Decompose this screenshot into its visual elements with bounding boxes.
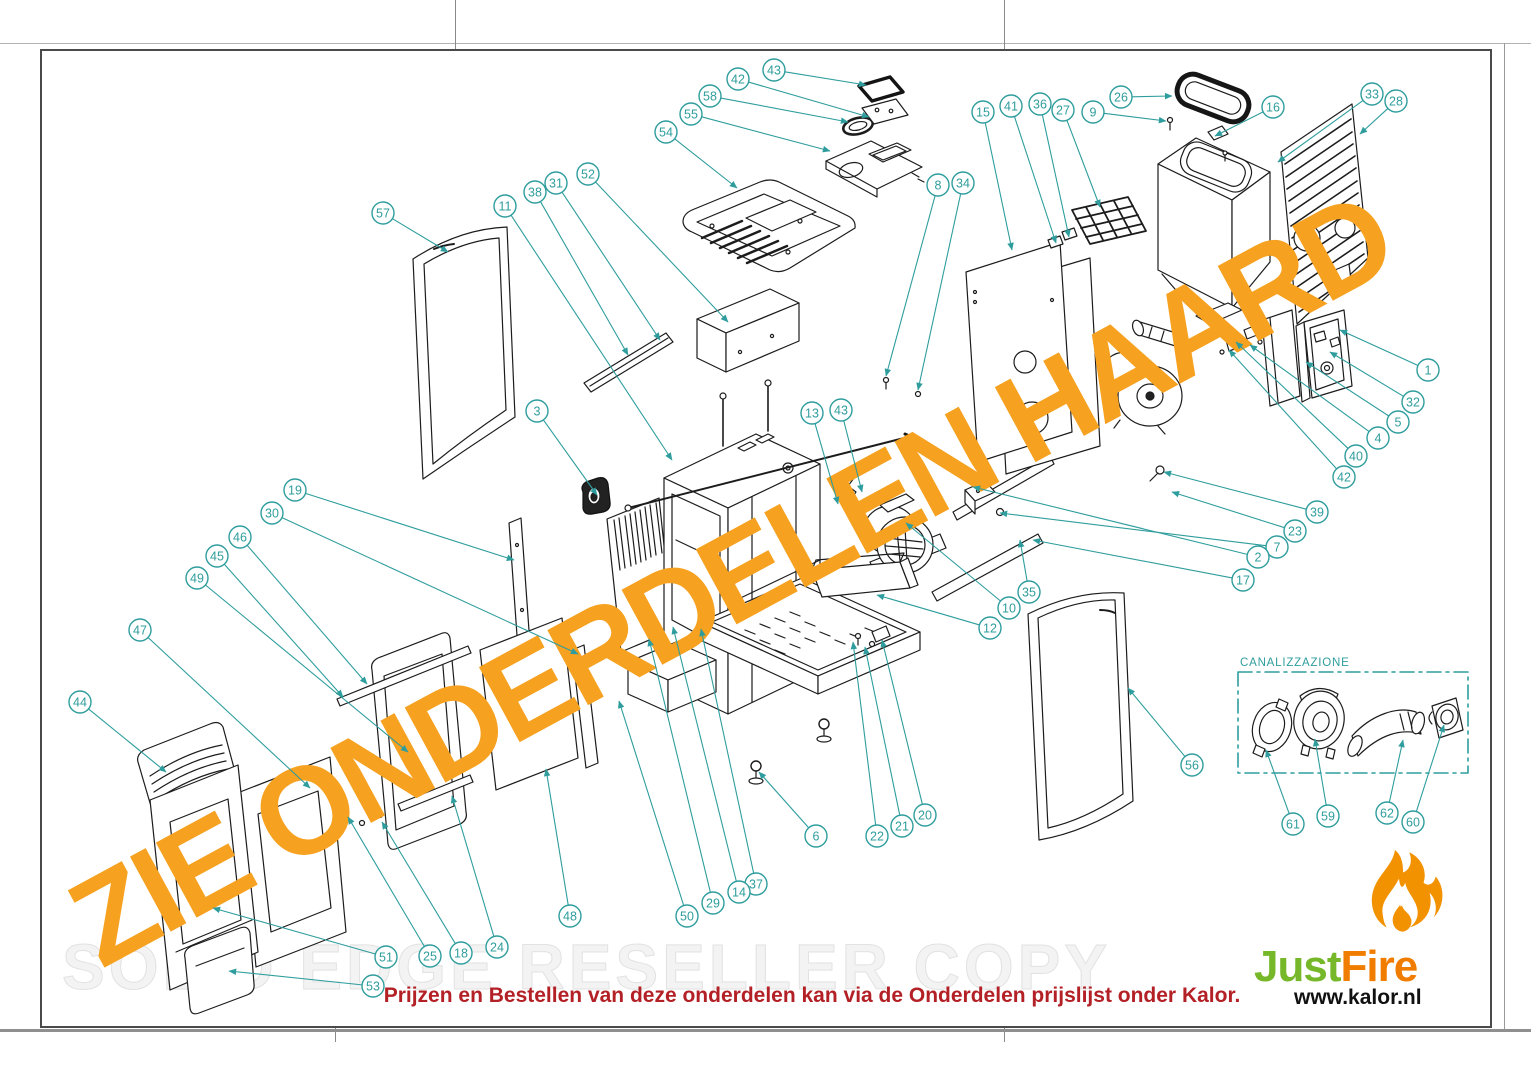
callout-leader-line [89, 709, 166, 772]
callout-48: 48 [546, 769, 581, 927]
callout-leader-line [1236, 342, 1348, 448]
callout-leader-line [382, 822, 455, 944]
callout-leader-line [1128, 688, 1185, 757]
callout-43: 43 [763, 59, 866, 85]
callout-24: 24 [452, 796, 508, 958]
callout-leader-line [1389, 740, 1403, 802]
callout-number: 7 [1274, 541, 1281, 555]
callout-7: 7 [1000, 513, 1288, 558]
callout-leader-line [1014, 116, 1056, 243]
callout-leader-line [702, 117, 830, 151]
callout-number: 28 [1389, 95, 1403, 109]
callout-43: 43 [830, 399, 862, 492]
callout-number: 47 [133, 624, 147, 638]
callout-1: 1 [1340, 330, 1439, 381]
callout-18: 18 [382, 822, 472, 964]
callout-59: 59 [1315, 739, 1339, 827]
callout-51: 51 [213, 908, 397, 968]
callout-number: 2 [1255, 551, 1262, 565]
callout-leader-line [815, 424, 838, 504]
callout-leader-line [1306, 362, 1389, 416]
callout-leader-line [619, 701, 684, 906]
callout-number: 51 [379, 951, 393, 965]
callout-number: 16 [1266, 101, 1280, 115]
callout-number: 31 [549, 177, 563, 191]
callout-60: 60 [1402, 725, 1444, 833]
callout-number: 12 [983, 622, 997, 636]
callout-number: 33 [1365, 88, 1379, 102]
callout-42: 42 [727, 68, 869, 117]
callout-number: 45 [210, 550, 224, 564]
callout-leader-line [213, 908, 375, 954]
callout-number: 34 [956, 177, 970, 191]
callout-number: 21 [895, 820, 909, 834]
callout-leader-line [1278, 100, 1363, 162]
callout-number: 29 [706, 897, 720, 911]
callout-number: 35 [1022, 586, 1036, 600]
callout-leader-line [1330, 352, 1404, 396]
callout-leader-line [546, 769, 568, 905]
callout-58: 58 [699, 85, 848, 122]
callout-number: 54 [659, 126, 673, 140]
callout-10: 10 [906, 523, 1020, 619]
callout-leader-line [1172, 492, 1285, 528]
callout-leader-line [882, 640, 922, 804]
callout-number: 13 [805, 407, 819, 421]
callout-leader-line [701, 629, 754, 873]
callout-number: 58 [703, 90, 717, 104]
callout-45: 45 [206, 545, 343, 697]
callout-61: 61 [1266, 750, 1304, 835]
callout-leader-line [148, 637, 310, 788]
callout-number: 44 [73, 696, 87, 710]
callout-leader-line [675, 139, 737, 188]
callout-31: 31 [545, 172, 660, 340]
callout-leader-line [1229, 350, 1337, 469]
callout-55: 55 [680, 103, 830, 151]
callout-35: 35 [1018, 540, 1040, 603]
callout-53: 53 [229, 971, 384, 997]
callout-leader-line [224, 564, 343, 697]
callout-23: 23 [1172, 492, 1306, 542]
callout-number: 43 [834, 404, 848, 418]
callout-number: 30 [265, 507, 279, 521]
callout-62: 62 [1376, 740, 1403, 824]
callout-number: 62 [1380, 807, 1394, 821]
callout-20: 20 [882, 640, 936, 826]
callout-leader-line [247, 545, 367, 684]
callout-49: 49 [186, 567, 408, 752]
callout-leader-line [1250, 345, 1369, 432]
callout-number: 48 [563, 910, 577, 924]
callout-leader-line [1266, 750, 1289, 814]
callout-number: 3 [534, 405, 541, 419]
callout-number: 20 [918, 809, 932, 823]
callout-leader-line [392, 219, 448, 252]
callout-32: 32 [1330, 352, 1424, 413]
callout-number: 41 [1004, 100, 1018, 114]
callout-number: 15 [976, 106, 990, 120]
callout-number: 26 [1114, 91, 1128, 105]
callout-number: 18 [454, 947, 468, 961]
callout-30: 30 [261, 502, 578, 654]
callout-25: 25 [348, 817, 441, 967]
callout-leader-line [511, 215, 672, 460]
callout-number: 49 [190, 572, 204, 586]
callout-leader-line [229, 971, 362, 985]
callout-leader-line [906, 523, 1001, 601]
callout-number: 61 [1286, 818, 1300, 832]
callout-leader-line [877, 595, 979, 625]
callout-number: 37 [749, 878, 763, 892]
callout-leader-line [785, 72, 866, 85]
logo-url: www.kalor.nl [1294, 986, 1422, 1010]
callout-number: 23 [1288, 525, 1302, 539]
callout-leader-line [1164, 472, 1306, 509]
callout-number: 59 [1321, 810, 1335, 824]
callout-leader-line [1033, 540, 1232, 578]
callout-leader-line [543, 420, 597, 495]
callout-50: 50 [619, 701, 698, 927]
callout-8: 8 [886, 174, 949, 376]
callout-number: 6 [813, 830, 820, 844]
callout-leader-line [1067, 120, 1100, 207]
callout-leader-line [886, 196, 935, 376]
callout-3: 3 [526, 400, 597, 495]
callout-number: 50 [680, 910, 694, 924]
callout-number: 57 [376, 207, 390, 221]
callout-leader-line [1315, 739, 1326, 805]
callout-number: 43 [767, 64, 781, 78]
callout-number: 55 [684, 108, 698, 122]
callout-number: 17 [1236, 574, 1250, 588]
callout-34: 34 [918, 172, 974, 390]
callout-number: 1 [1425, 364, 1432, 378]
callout-42: 42 [1229, 350, 1355, 488]
callout-33: 33 [1278, 83, 1383, 162]
callout-40: 40 [1236, 342, 1367, 467]
callout-number: 60 [1406, 816, 1420, 830]
callout-leader-line [1340, 330, 1418, 365]
callout-number: 46 [233, 531, 247, 545]
callout-number: 8 [935, 179, 942, 193]
callout-leader-line [1020, 540, 1027, 581]
callout-number: 11 [499, 200, 512, 214]
callout-52: 52 [577, 163, 728, 322]
callout-number: 4 [1375, 432, 1382, 446]
callout-leader-line [844, 421, 862, 492]
callout-leader-line [865, 647, 900, 815]
callout-54: 54 [655, 121, 737, 188]
callout-number: 25 [423, 950, 437, 964]
callout-46: 46 [229, 526, 367, 684]
callout-layer: 5711383152545558424315413627926163328834… [0, 0, 1531, 1085]
callout-16: 16 [1215, 96, 1284, 136]
callout-19: 19 [284, 479, 514, 560]
callout-leader-line [596, 182, 728, 322]
callout-leader-line [1132, 96, 1172, 97]
flame-icon [1350, 848, 1446, 950]
callout-number: 24 [490, 941, 504, 955]
callout-leader-line [721, 98, 848, 122]
callout-leader-line [305, 493, 514, 560]
callout-number: 40 [1349, 450, 1363, 464]
callout-37: 37 [701, 629, 767, 895]
callout-leader-line [853, 642, 876, 825]
callout-number: 53 [366, 980, 380, 994]
callout-leader-line [985, 123, 1012, 250]
callout-number: 39 [1310, 506, 1324, 520]
callout-57: 57 [372, 202, 448, 252]
callout-number: 32 [1406, 396, 1420, 410]
logo-fire: Fire [1340, 942, 1417, 991]
logo-just: Just [1254, 942, 1340, 991]
callout-leader-line [973, 487, 1247, 554]
callout-leader-line [540, 202, 628, 355]
callout-leader-line [1360, 108, 1388, 134]
callout-leader-line [749, 82, 869, 117]
callout-leader-line [918, 194, 961, 390]
callout-15: 15 [972, 101, 1012, 250]
callout-leader-line [452, 796, 494, 936]
callout-44: 44 [69, 691, 166, 772]
callout-number: 19 [288, 484, 302, 498]
footer-note: Prijzen en Bestellen van deze onderdelen… [384, 984, 1241, 1008]
callout-41: 41 [1000, 95, 1056, 243]
callout-number: 9 [1090, 106, 1097, 120]
drawing-sheet: SOLID EDGE RESELLER COPY [0, 0, 1531, 1085]
callout-47: 47 [129, 619, 310, 788]
callout-leader-line [348, 817, 424, 947]
callout-number: 42 [1337, 471, 1351, 485]
callout-number: 52 [581, 168, 595, 182]
callout-number: 56 [1185, 759, 1199, 773]
callout-leader-line [1104, 113, 1166, 121]
callout-leader-line [1215, 112, 1263, 136]
callout-number: 27 [1056, 104, 1070, 118]
callout-leader-line [1416, 725, 1444, 812]
callout-14: 14 [673, 627, 750, 903]
callout-leader-line [649, 639, 710, 892]
callout-21: 21 [865, 647, 913, 837]
callout-number: 36 [1033, 98, 1047, 112]
callout-leader-line [282, 518, 578, 654]
callout-number: 22 [870, 830, 884, 844]
callout-leader-line [759, 772, 809, 828]
callout-26: 26 [1110, 86, 1172, 108]
callout-number: 10 [1002, 602, 1016, 616]
callout-number: 5 [1395, 416, 1402, 430]
callout-number: 14 [732, 886, 746, 900]
callout-number: 42 [731, 73, 745, 87]
callout-56: 56 [1128, 688, 1203, 776]
callout-12: 12 [877, 595, 1001, 639]
callout-number: 38 [528, 186, 542, 200]
callout-6: 6 [759, 772, 827, 847]
callout-leader-line [673, 627, 736, 881]
callout-leader-line [1042, 115, 1069, 237]
callout-leader-line [205, 585, 408, 752]
logo-wordmark: JustFire [1254, 942, 1417, 992]
